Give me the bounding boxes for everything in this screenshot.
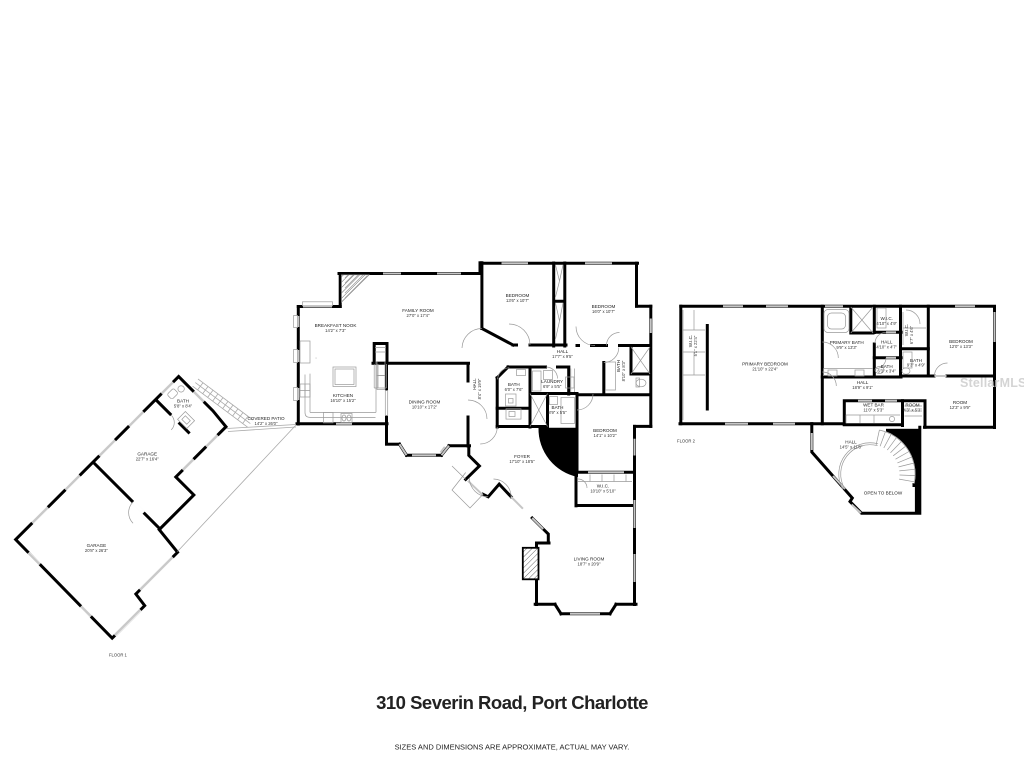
svg-text:10'10" x 5'10": 10'10" x 5'10" — [590, 489, 616, 494]
svg-text:14'2" x 26'0": 14'2" x 26'0" — [255, 421, 278, 426]
svg-text:6'0" x 7'6": 6'0" x 7'6" — [505, 387, 524, 392]
svg-text:9'3" x 4'9": 9'3" x 4'9" — [907, 363, 926, 368]
svg-text:17'7" x 9'5": 17'7" x 9'5" — [552, 354, 573, 359]
svg-text:10'10" x 17'2": 10'10" x 17'2" — [412, 405, 438, 410]
svg-text:4'10" x 4'9": 4'10" x 4'9" — [876, 321, 897, 326]
svg-text:6'3" x 3'4": 6'3" x 3'4" — [878, 369, 897, 374]
svg-text:14'2" x 7'3": 14'2" x 7'3" — [325, 328, 346, 333]
svg-text:17'10" x 18'5": 17'10" x 18'5" — [509, 459, 535, 464]
svg-text:OPEN TO BELOW: OPEN TO BELOW — [864, 491, 903, 496]
svg-text:12'0" x 13'3": 12'0" x 13'3" — [950, 344, 973, 349]
svg-text:21'10" x 22'4": 21'10" x 22'4" — [752, 367, 778, 372]
svg-text:16'0" x 10'7": 16'0" x 10'7" — [592, 309, 615, 314]
svg-text:8'9" x 5'5": 8'9" x 5'5" — [548, 410, 567, 415]
svg-text:13'6" x 10'7": 13'6" x 10'7" — [506, 298, 529, 303]
svg-text:5'1" x 22'4": 5'1" x 22'4" — [693, 335, 698, 356]
svg-text:27'0" x 17'4": 27'0" x 17'4" — [407, 313, 430, 318]
svg-text:StellarMLS: StellarMLS — [960, 376, 1024, 390]
svg-text:4'3" x 5'3": 4'3" x 5'3" — [903, 408, 922, 413]
svg-text:18'7" x 20'9": 18'7" x 20'9" — [578, 562, 601, 567]
svg-text:FLOOR 1: FLOOR 1 — [109, 653, 128, 658]
svg-text:4'10" x 4'7": 4'10" x 4'7" — [876, 345, 897, 350]
svg-text:SIZES AND DIMENSIONS ARE APPRO: SIZES AND DIMENSIONS ARE APPROXIMATE, AC… — [395, 743, 630, 752]
svg-text:310 Severin Road, Port Charlot: 310 Severin Road, Port Charlotte — [376, 692, 648, 713]
svg-text:6'9" x 5'5": 6'9" x 5'5" — [543, 384, 562, 389]
svg-text:20'8" x 26'3": 20'8" x 26'3" — [85, 548, 108, 553]
svg-text:22'7" x 16'4": 22'7" x 16'4" — [136, 457, 159, 462]
svg-text:11'0" x 5'3": 11'0" x 5'3" — [863, 408, 884, 413]
svg-text:5'8" x 8'4": 5'8" x 8'4" — [174, 404, 193, 409]
svg-text:16'10" x 15'2": 16'10" x 15'2" — [330, 398, 356, 403]
svg-text:12'3" x 9'9": 12'3" x 9'9" — [950, 405, 971, 410]
svg-text:14'5" x 11'8": 14'5" x 11'8" — [840, 445, 863, 450]
svg-text:8'10" x 8'3": 8'10" x 8'3" — [621, 360, 626, 381]
svg-text:14'1" x 10'2": 14'1" x 10'2" — [594, 433, 617, 438]
svg-text:18'9" x 9'1": 18'9" x 9'1" — [852, 385, 873, 390]
svg-text:6'7" x 4'6": 6'7" x 4'6" — [909, 325, 914, 344]
svg-text:FLOOR 2: FLOOR 2 — [677, 439, 696, 444]
svg-text:8'4" x 19'9": 8'4" x 19'9" — [477, 378, 482, 399]
svg-text:9'9" x 13'3": 9'9" x 13'3" — [836, 345, 857, 350]
